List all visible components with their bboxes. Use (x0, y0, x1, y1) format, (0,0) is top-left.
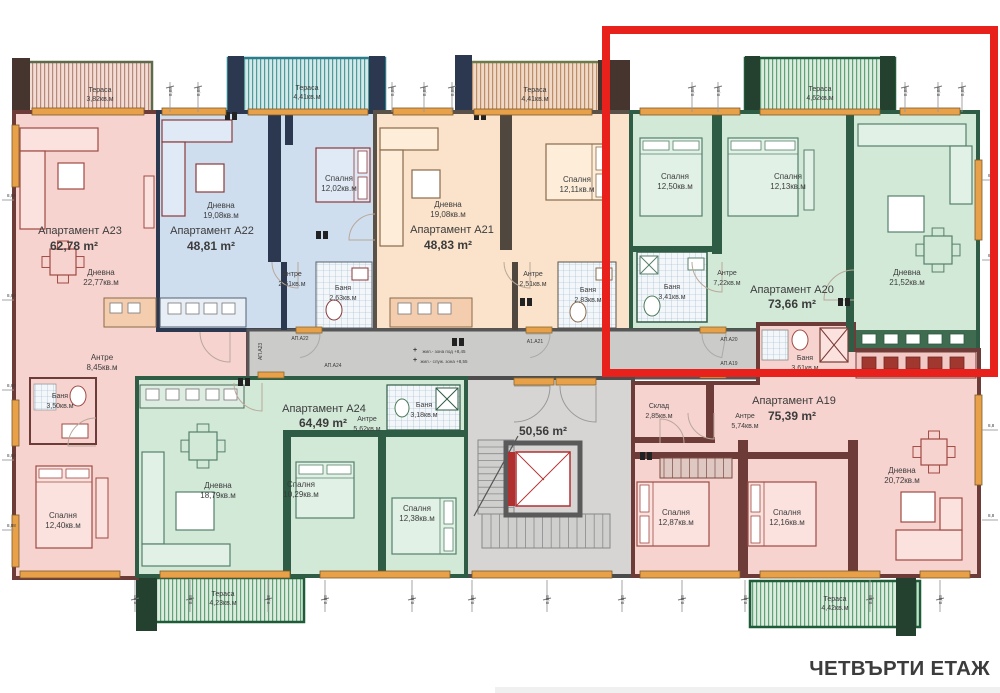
svg-text:8,88: 8,88 (410, 595, 415, 604)
svg-text:Апартамент А23: Апартамент А23 (38, 225, 122, 237)
svg-text:Антре: Антре (717, 270, 737, 277)
svg-text:8,88: 8,88 (168, 87, 173, 96)
svg-text:73,66 m²: 73,66 m² (768, 297, 816, 311)
svg-text:7,22кв.м: 7,22кв.м (713, 280, 740, 287)
svg-text:8,88: 8,88 (188, 595, 193, 604)
svg-text:4,42кв.м: 4,42кв.м (821, 605, 848, 612)
svg-text:5,74кв.м: 5,74кв.м (731, 423, 758, 430)
svg-text:Спалня: Спалня (325, 174, 353, 183)
svg-text:4,23кв.м: 4,23кв.м (209, 600, 236, 607)
svg-text:Дневна: Дневна (87, 268, 115, 277)
svg-text:Баня: Баня (416, 402, 432, 409)
svg-text:Спалня: Спалня (563, 175, 591, 184)
svg-text:жил.- зона под +8,45: жил.- зона под +8,45 (422, 349, 466, 354)
svg-text:20,72кв.м: 20,72кв.м (884, 476, 920, 485)
svg-text:8,88: 8,88 (7, 293, 16, 298)
svg-text:Антре: Антре (523, 271, 543, 278)
svg-text:Антре: Антре (91, 353, 114, 362)
svg-text:АП.А22: АП.А22 (291, 336, 308, 342)
svg-text:12,40кв.м: 12,40кв.м (45, 521, 81, 530)
svg-text:8,88: 8,88 (133, 595, 138, 604)
svg-text:3,50кв.м: 3,50кв.м (46, 403, 73, 410)
svg-text:Спалня: Спалня (662, 508, 690, 517)
svg-text:8,88: 8,88 (196, 87, 201, 96)
svg-text:Дневна: Дневна (207, 201, 235, 210)
svg-text:Апартамент А20: Апартамент А20 (750, 284, 834, 296)
svg-text:12,50кв.м: 12,50кв.м (657, 182, 693, 191)
svg-text:Тераса: Тераса (809, 86, 832, 93)
svg-text:Апартамент А22: Апартамент А22 (170, 225, 254, 237)
svg-text:Спалня: Спалня (287, 480, 315, 489)
svg-text:19,08кв.м: 19,08кв.м (203, 211, 239, 220)
svg-text:48,81 m²: 48,81 m² (187, 239, 235, 253)
svg-text:Тераса: Тераса (212, 591, 235, 598)
svg-text:8,8: 8,8 (988, 423, 995, 428)
svg-text:8,88: 8,88 (936, 87, 941, 96)
svg-text:22,77кв.м: 22,77кв.м (83, 278, 119, 287)
svg-text:8,88: 8,88 (743, 595, 748, 604)
svg-text:Склад: Склад (649, 403, 669, 410)
svg-text:Апартамент А21: Апартамент А21 (410, 224, 494, 236)
svg-text:12,87кв.м: 12,87кв.м (658, 518, 694, 527)
svg-text:4,41кв.м: 4,41кв.м (293, 94, 320, 101)
svg-text:12,16кв.м: 12,16кв.м (769, 518, 805, 527)
svg-text:Спалня: Спалня (49, 511, 77, 520)
svg-text:жил.- служ. зона +8,55: жил.- служ. зона +8,55 (421, 359, 468, 364)
svg-text:8,88: 8,88 (450, 87, 455, 96)
svg-text:Спалня: Спалня (773, 508, 801, 517)
svg-text:12,11кв.м: 12,11кв.м (560, 185, 595, 194)
svg-text:8,8: 8,8 (988, 513, 995, 518)
svg-text:+: + (413, 347, 417, 354)
svg-text:8,88: 8,88 (390, 87, 395, 96)
svg-text:Тераса: Тераса (824, 596, 847, 603)
svg-text:Тераса: Тераса (296, 85, 319, 92)
svg-text:8,88: 8,88 (7, 383, 16, 388)
svg-text:Спалня: Спалня (403, 504, 431, 513)
svg-text:8,88: 8,88 (680, 595, 685, 604)
svg-text:2,51кв.м: 2,51кв.м (278, 281, 305, 288)
svg-text:8,88: 8,88 (323, 595, 328, 604)
svg-text:АП.А19: АП.А19 (720, 361, 737, 367)
svg-text:Баня: Баня (664, 284, 680, 291)
svg-text:10,29кв.м: 10,29кв.м (283, 490, 319, 499)
svg-text:2,83кв.м: 2,83кв.м (574, 297, 601, 304)
svg-text:8,88: 8,88 (266, 595, 271, 604)
svg-text:8,88: 8,88 (620, 595, 625, 604)
svg-text:А1.А21: А1.А21 (527, 339, 544, 345)
svg-text:Баня: Баня (52, 393, 68, 400)
svg-text:8,45кв.м: 8,45кв.м (86, 363, 117, 372)
svg-text:АП.А23: АП.А23 (258, 343, 264, 360)
svg-text:3,82кв.м: 3,82кв.м (86, 96, 113, 103)
svg-text:75,39 m²: 75,39 m² (768, 409, 816, 423)
svg-text:Дневна: Дневна (893, 268, 921, 277)
svg-text:Спалня: Спалня (661, 172, 689, 181)
svg-text:Баня: Баня (580, 287, 596, 294)
svg-text:12,13кв.м: 12,13кв.м (770, 182, 806, 191)
svg-text:8,88: 8,88 (716, 87, 721, 96)
svg-text:Баня: Баня (797, 355, 813, 362)
svg-text:2,51кв.м: 2,51кв.м (519, 281, 546, 288)
svg-text:Спалня: Спалня (774, 172, 802, 181)
svg-text:8,88: 8,88 (868, 595, 873, 604)
svg-text:Дневна: Дневна (204, 481, 232, 490)
svg-text:2,63кв.м: 2,63кв.м (329, 295, 356, 302)
svg-text:8,88: 8,88 (7, 193, 16, 198)
svg-text:4,62кв.м: 4,62кв.м (806, 95, 833, 102)
svg-text:8,88: 8,88 (938, 595, 943, 604)
svg-text:Тераса: Тераса (524, 87, 547, 94)
svg-text:19,08кв.м: 19,08кв.м (430, 210, 466, 219)
svg-text:12,02кв.м: 12,02кв.м (321, 184, 357, 193)
svg-text:8,88: 8,88 (903, 87, 908, 96)
svg-text:Антре: Антре (735, 413, 755, 420)
svg-text:2,85кв.м: 2,85кв.м (645, 413, 672, 420)
svg-text:8,88: 8,88 (7, 453, 16, 458)
svg-text:8,88: 8,88 (7, 523, 16, 528)
svg-text:Тераса: Тераса (89, 87, 112, 94)
svg-text:АП.А20: АП.А20 (720, 337, 737, 343)
svg-text:8,88: 8,88 (545, 595, 550, 604)
svg-text:50,56 m²: 50,56 m² (519, 424, 567, 438)
svg-text:Апартамент А24: Апартамент А24 (282, 403, 366, 415)
svg-text:+: + (413, 357, 417, 364)
svg-text:64,49 m²: 64,49 m² (299, 416, 347, 430)
svg-text:Баня: Баня (335, 285, 351, 292)
svg-text:Антре: Антре (357, 416, 377, 423)
svg-text:Дневна: Дневна (888, 466, 916, 475)
svg-text:ЧЕТВЪРТИ ЕТАЖ: ЧЕТВЪРТИ ЕТАЖ (809, 657, 990, 680)
svg-text:18,79кв.м: 18,79кв.м (200, 491, 236, 500)
svg-text:5,62кв.м: 5,62кв.м (353, 426, 380, 433)
svg-text:3,41кв.м: 3,41кв.м (658, 294, 685, 301)
svg-text:8,88: 8,88 (422, 87, 427, 96)
svg-text:4,41кв.м: 4,41кв.м (521, 96, 548, 103)
svg-text:12,38кв.м: 12,38кв.м (399, 514, 435, 523)
svg-text:8,88: 8,88 (690, 87, 695, 96)
svg-text:Дневна: Дневна (434, 200, 462, 209)
svg-text:8,88: 8,88 (960, 87, 965, 96)
svg-text:8,88: 8,88 (470, 595, 475, 604)
svg-text:Антре: Антре (282, 271, 302, 278)
svg-text:62,78 m²: 62,78 m² (50, 239, 98, 253)
svg-text:АП.А24: АП.А24 (324, 363, 341, 369)
svg-text:48,83 m²: 48,83 m² (424, 238, 472, 252)
svg-text:Апартамент А19: Апартамент А19 (752, 395, 836, 407)
svg-text:21,52кв.м: 21,52кв.м (889, 278, 925, 287)
svg-text:3,18кв.м: 3,18кв.м (410, 412, 437, 419)
